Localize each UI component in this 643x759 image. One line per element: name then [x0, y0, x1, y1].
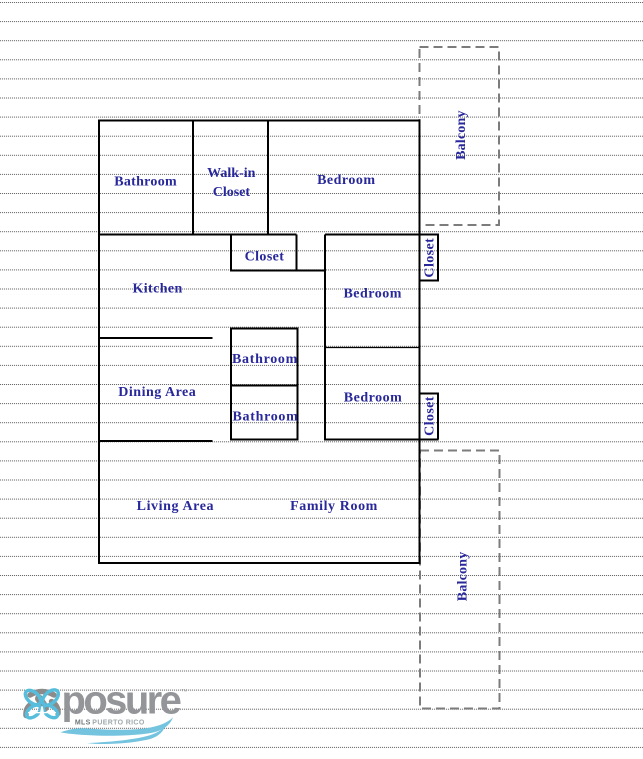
svg-text:Bedroom: Bedroom [344, 391, 402, 406]
svg-text:posure: posure [62, 679, 181, 723]
svg-text:Bathroom: Bathroom [114, 174, 177, 189]
svg-text:MLS: MLS [75, 719, 91, 726]
svg-text:Living Area: Living Area [137, 499, 215, 514]
svg-text:Family Room: Family Room [290, 499, 378, 514]
svg-text:Bathroom: Bathroom [232, 352, 298, 367]
svg-text:Bedroom: Bedroom [317, 173, 375, 188]
svg-text:Bathroom: Bathroom [232, 410, 298, 425]
svg-text:Closet: Closet [422, 238, 437, 278]
svg-text:Kitchen: Kitchen [132, 281, 182, 296]
svg-text:PUERTO RICO: PUERTO RICO [92, 719, 145, 726]
svg-text:Bedroom: Bedroom [343, 286, 401, 301]
svg-text:Dining Area: Dining Area [118, 385, 196, 400]
svg-text:Closet: Closet [213, 185, 251, 200]
svg-text:Balcony: Balcony [454, 110, 469, 160]
svg-text:Closet: Closet [245, 250, 285, 265]
svg-text:Balcony: Balcony [455, 552, 470, 602]
svg-text:Closet: Closet [422, 396, 437, 436]
svg-text:Walk-in: Walk-in [207, 166, 255, 181]
svg-text:™: ™ [181, 689, 188, 696]
